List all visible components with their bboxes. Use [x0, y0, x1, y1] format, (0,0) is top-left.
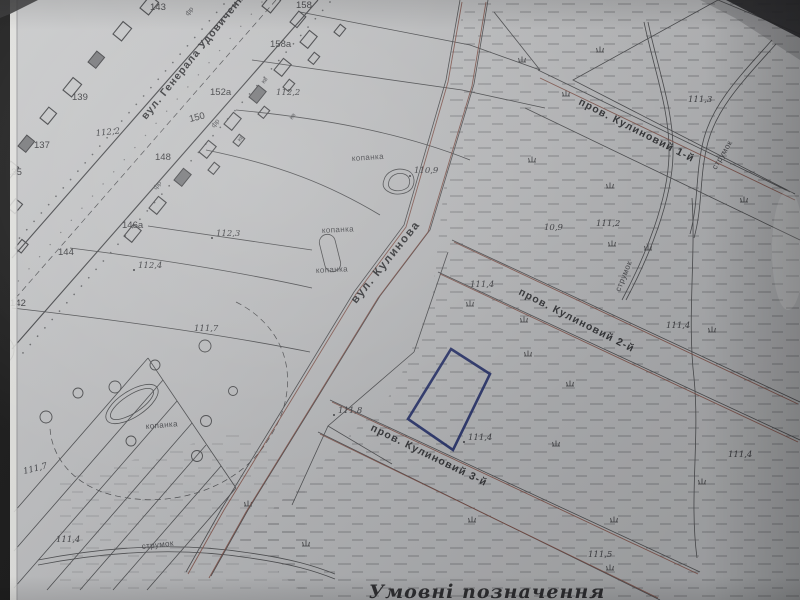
- elevation-label: 111,4: [470, 280, 494, 290]
- house-number: 146а: [122, 220, 144, 231]
- pond-label: копанка: [316, 264, 349, 275]
- elevation-label: 111,8: [338, 406, 363, 416]
- elevation-label: 112,4: [138, 261, 162, 271]
- pond-label: копанка: [322, 224, 355, 235]
- elevation-label: 10,9: [544, 223, 564, 233]
- house-number: 144: [58, 247, 74, 258]
- elevation-label: 111,4: [56, 535, 80, 545]
- elevation-label: 111,4: [468, 433, 492, 443]
- elevation-label: 110,9: [414, 166, 439, 176]
- house-number: 143: [150, 2, 166, 13]
- house-number: 152а: [210, 87, 232, 98]
- elevation-label: 111,7: [194, 324, 219, 334]
- elevation-label: 111,4: [666, 321, 690, 331]
- house-number: 158: [296, 0, 312, 11]
- elevation-label: 112,3: [216, 229, 240, 239]
- house-number: 139: [72, 92, 88, 103]
- house-number: 158а: [270, 39, 292, 50]
- elevation-label: 111,4: [728, 450, 752, 460]
- elevation-label: 112,2: [276, 88, 300, 98]
- elevation-label: 111,2: [596, 219, 620, 229]
- house-number: 137: [34, 140, 50, 151]
- elevation-label: 111,5: [588, 550, 612, 560]
- map-canvas: вул. Генерала Удовиченка вул. Кулинова п…: [0, 0, 800, 600]
- house-number: 148: [155, 152, 171, 163]
- scanned-map-photo: вул. Генерала Удовиченка вул. Кулинова п…: [0, 0, 800, 600]
- legend-title: Умовні позначення: [369, 581, 606, 600]
- elevation-label: 111,3: [688, 95, 712, 105]
